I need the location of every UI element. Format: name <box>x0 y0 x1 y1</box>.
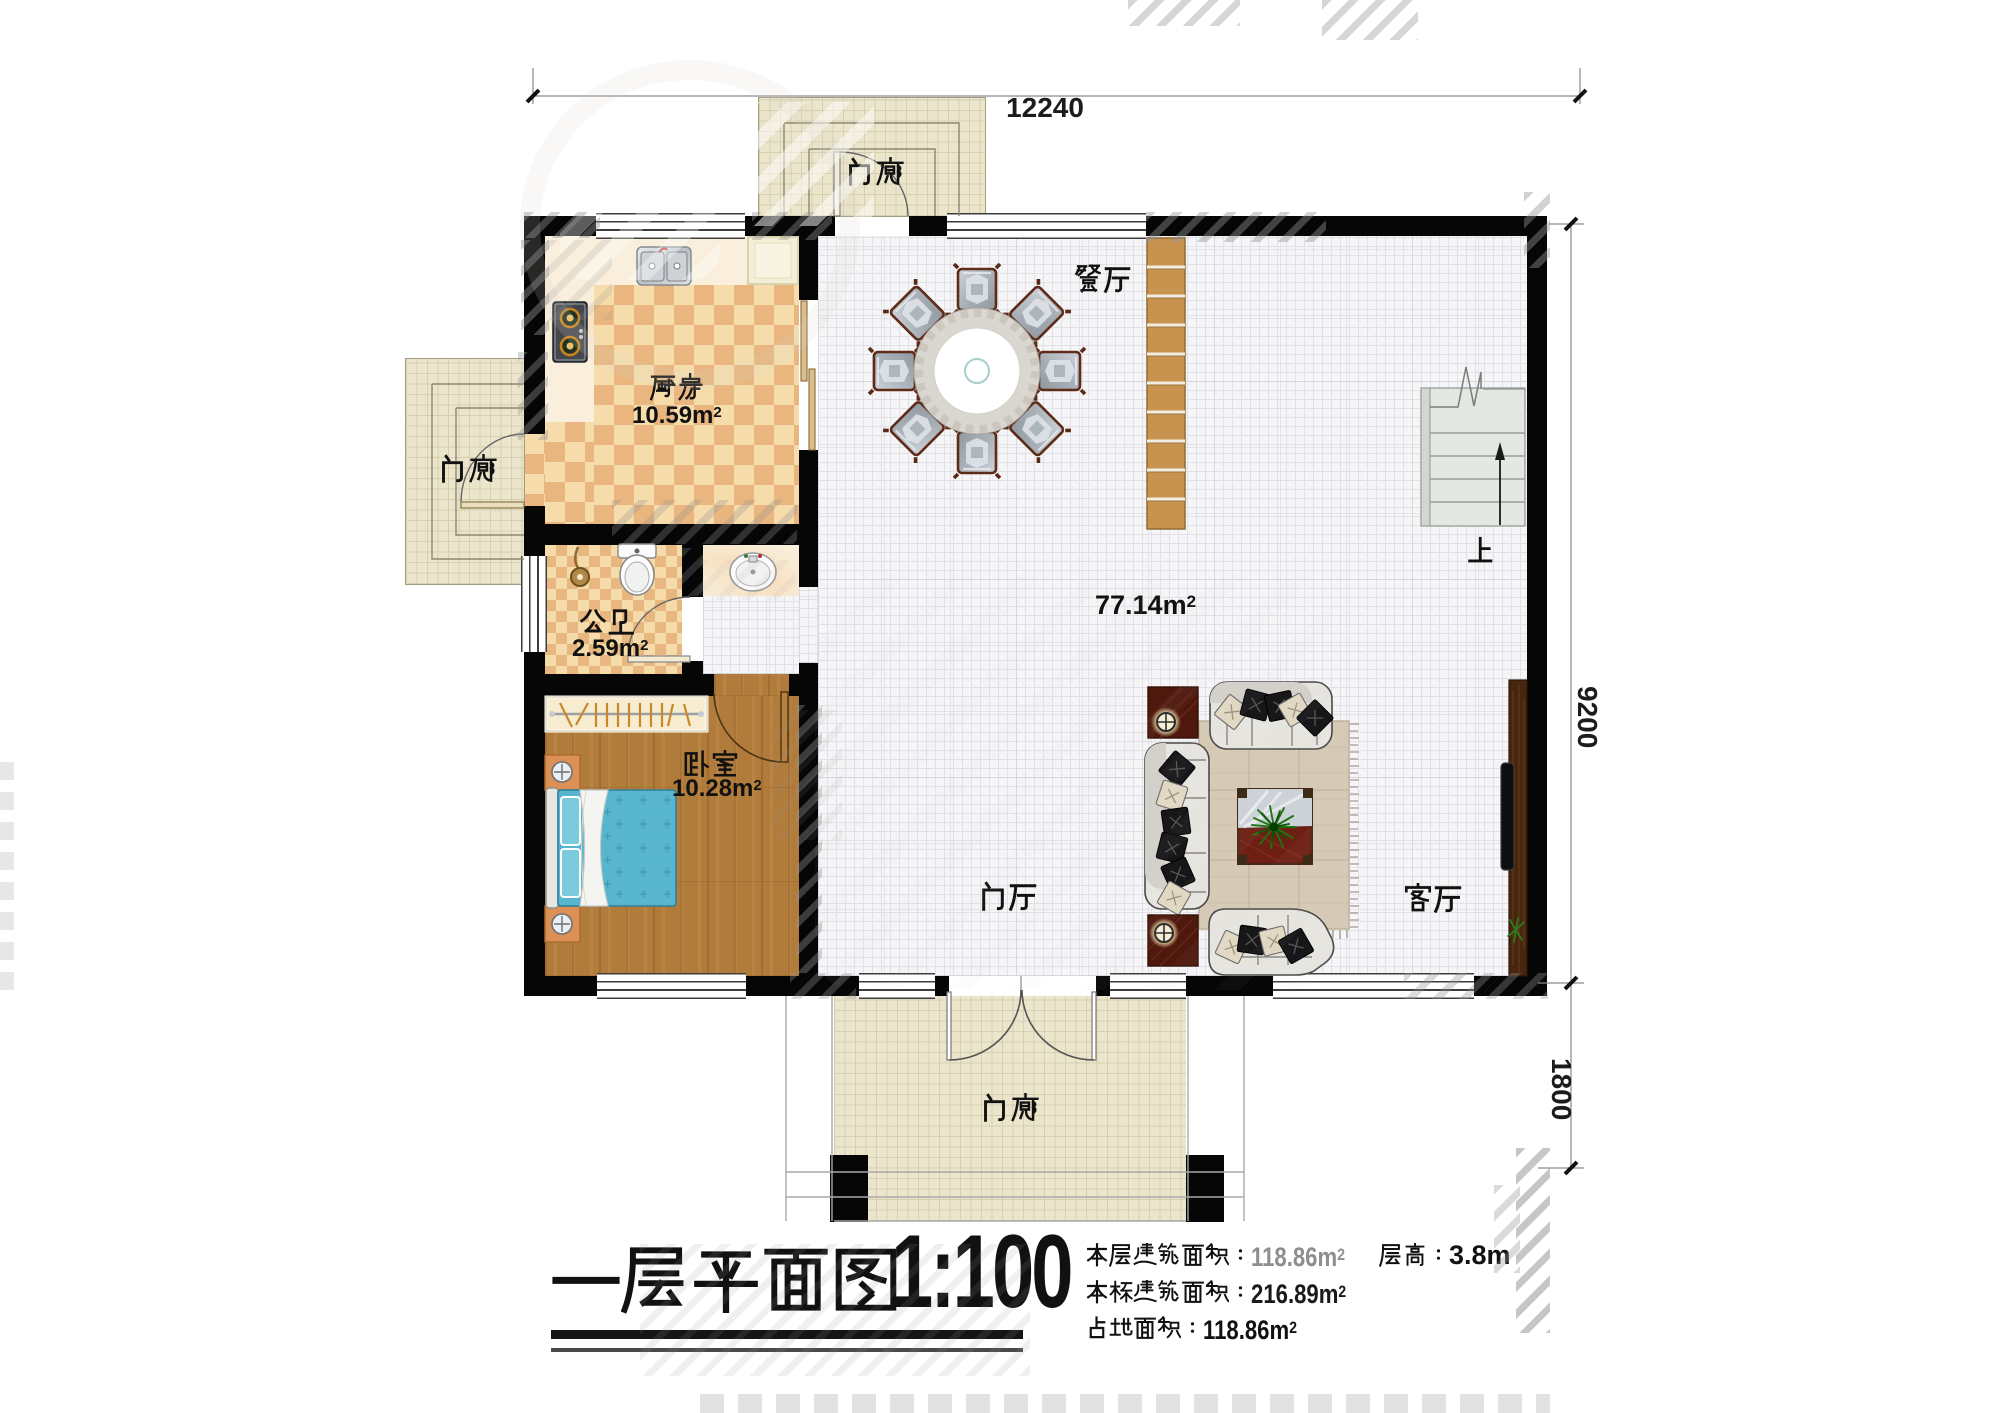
svg-text:9200: 9200 <box>1572 686 1603 748</box>
svg-text:1800: 1800 <box>1546 1058 1577 1120</box>
svg-text:12240: 12240 <box>1006 92 1084 123</box>
